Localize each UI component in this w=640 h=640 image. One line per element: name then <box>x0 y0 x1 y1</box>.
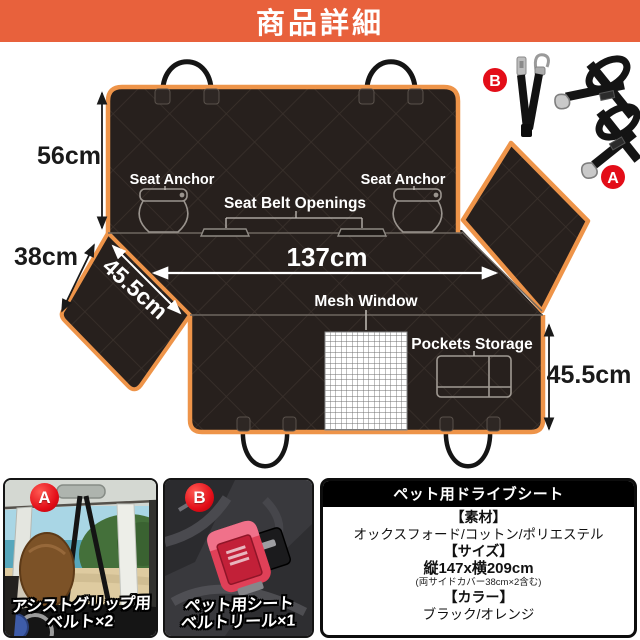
panel-a-badge: A <box>30 483 59 512</box>
seat-belt-openings-label: Seat Belt Openings <box>224 195 366 212</box>
product-spec-panel: ペット用ドライブシート 【素材】 オックスフォード/コットン/ポリエステル 【サ… <box>320 478 637 638</box>
svg-text:B: B <box>489 73 501 90</box>
seat-anchor-right-label: Seat Anchor <box>361 172 446 188</box>
dim-45cm-right-label: 45.5cm <box>547 361 632 389</box>
mesh-window-label: Mesh Window <box>314 293 418 310</box>
spec-size-header: 【サイズ】 <box>323 543 634 560</box>
seat-anchor-left-label: Seat Anchor <box>130 172 215 188</box>
dim-56cm-label: 56cm <box>37 142 101 170</box>
seat-belt-tether-illustration <box>517 55 548 137</box>
banner-title: 商品詳細 <box>256 0 384 42</box>
spec-size-note: (両サイドカバー38cm×2含む) <box>323 577 634 589</box>
dim-137cm-label: 137cm <box>287 242 368 272</box>
photo-panel-b: ペット用シート ベルトリール×1 B <box>163 478 314 638</box>
mesh-window-shape <box>325 332 407 430</box>
svg-text:A: A <box>607 170 619 187</box>
spec-panel-body: 【素材】 オックスフォード/コットン/ポリエステル 【サイズ】 縦147x横20… <box>323 507 634 623</box>
spec-panel-title: ペット用ドライブシート <box>323 481 634 507</box>
diagram-badge-b: B <box>483 68 507 92</box>
spec-color-header: 【カラー】 <box>323 589 634 606</box>
dim-38cm-label: 38cm <box>14 243 78 271</box>
panel-b-badge: B <box>185 483 214 512</box>
diagram-badge-a: A <box>601 165 625 189</box>
spec-color-value: ブラック/オレンジ <box>323 606 634 623</box>
photo-panel-a: アシストグリップ用 ベルト×2 A <box>3 478 158 638</box>
seat-cover-diagram: 56cm 38cm 45.5cm 137cm 45.5cm Seat Ancho… <box>0 42 640 478</box>
spec-size-value: 縦147x横209cm <box>323 560 634 577</box>
spec-material-header: 【素材】 <box>323 509 634 526</box>
spec-material-value: オックスフォード/コットン/ポリエステル <box>323 526 634 543</box>
panel-a-caption: アシストグリップ用 ベルト×2 <box>4 595 157 633</box>
product-detail-banner: 商品詳細 <box>0 0 640 42</box>
pockets-storage-label: Pockets Storage <box>411 336 533 353</box>
panel-b-caption: ペット用シート ベルトリール×1 <box>164 596 313 634</box>
